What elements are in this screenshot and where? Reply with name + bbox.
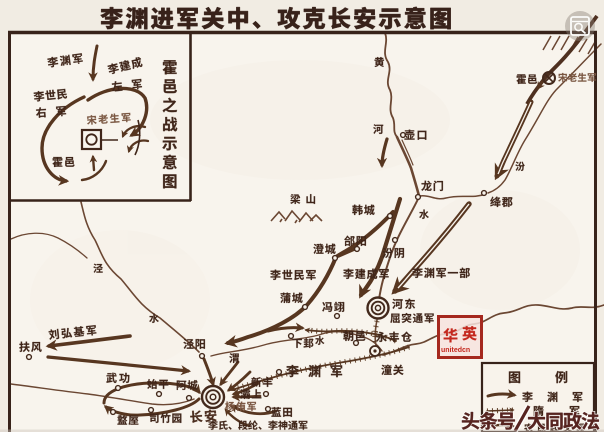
svg-text:unitedcn: unitedcn bbox=[441, 347, 470, 354]
